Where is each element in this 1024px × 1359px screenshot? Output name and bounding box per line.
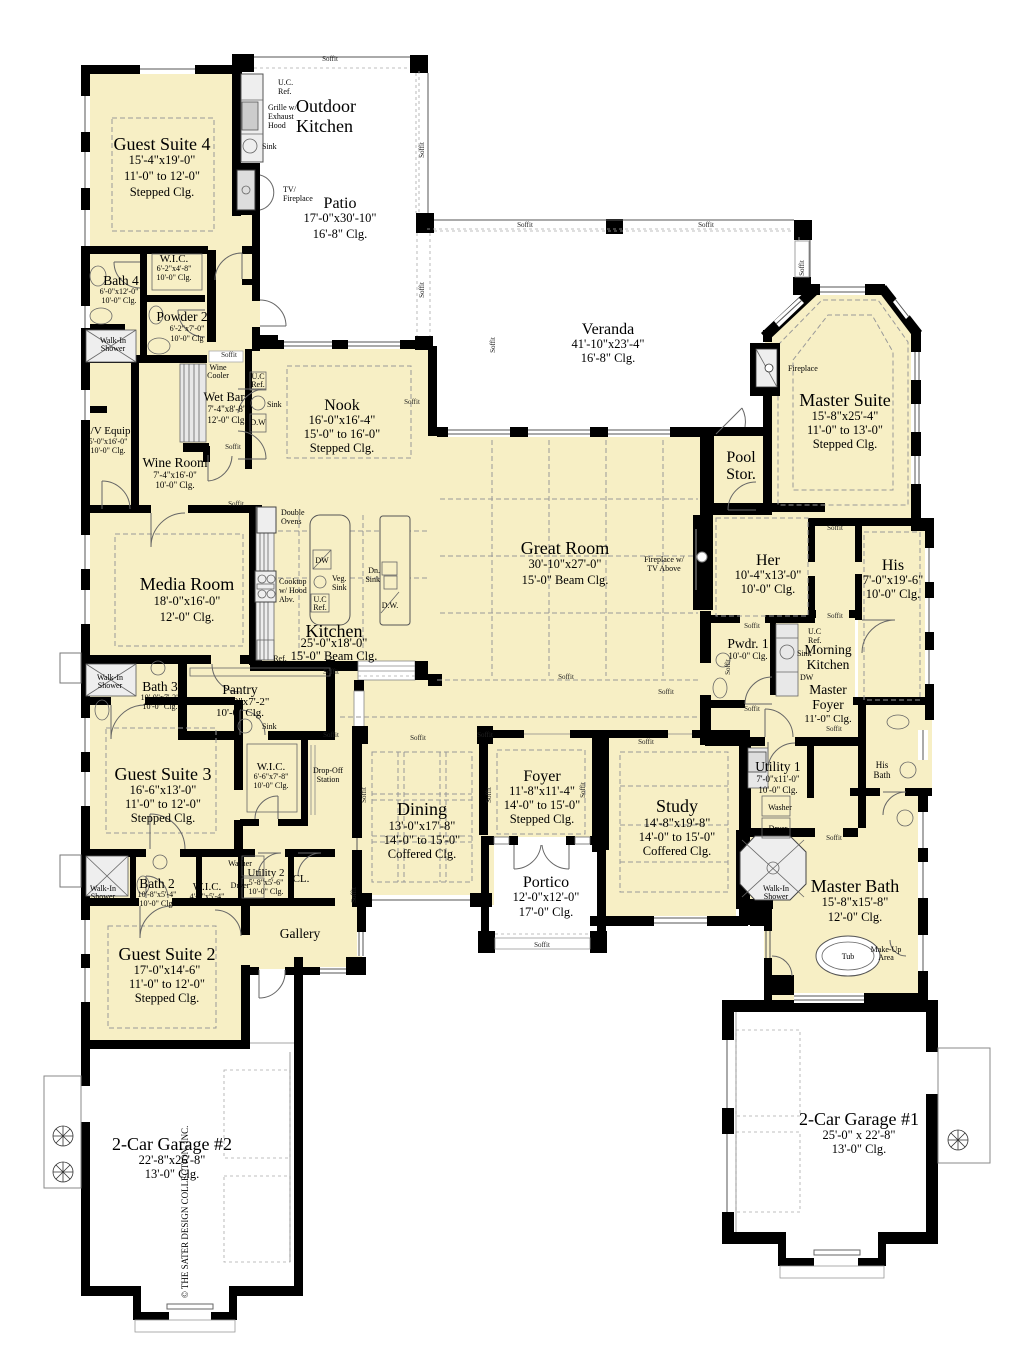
svg-text:16'-0"x16'-4": 16'-0"x16'-4" xyxy=(309,413,376,427)
svg-text:Coffered Clg.: Coffered Clg. xyxy=(388,847,457,861)
svg-text:DW: DW xyxy=(800,673,814,682)
svg-text:Guest Suite 3: Guest Suite 3 xyxy=(115,764,212,784)
svg-text:7'-4"x8'-8": 7'-4"x8'-8" xyxy=(207,404,246,414)
svg-text:15'-0" Beam Clg.: 15'-0" Beam Clg. xyxy=(522,573,609,587)
svg-text:13'-0"x17'-8": 13'-0"x17'-8" xyxy=(389,819,456,833)
svg-text:7'-0"x11'-0": 7'-0"x11'-0" xyxy=(756,774,800,784)
svg-text:2-Car Garage #2: 2-Car Garage #2 xyxy=(112,1134,232,1154)
svg-text:TV/: TV/ xyxy=(283,185,297,194)
svg-text:Soffit: Soffit xyxy=(658,688,674,696)
svg-text:U.C: U.C xyxy=(808,627,821,636)
svg-text:Soffit: Soffit xyxy=(418,142,426,158)
svg-text:Soffit: Soffit xyxy=(489,337,497,353)
svg-text:Stepped Clg.: Stepped Clg. xyxy=(130,185,195,199)
svg-text:10'-4"x13'-0": 10'-4"x13'-0" xyxy=(735,568,802,582)
svg-text:Ref.: Ref. xyxy=(278,87,292,96)
svg-text:Cooler: Cooler xyxy=(207,371,229,380)
svg-text:2-Car Garage #1: 2-Car Garage #1 xyxy=(799,1109,919,1129)
svg-text:15'-4"x19'-0": 15'-4"x19'-0" xyxy=(129,153,196,167)
svg-text:Stepped Clg.: Stepped Clg. xyxy=(510,812,575,826)
svg-text:10'-0" Clg: 10'-0" Clg xyxy=(171,334,204,343)
svg-text:7'-0"x19'-6": 7'-0"x19'-6" xyxy=(863,573,924,587)
svg-text:14'-0" to 15'-0": 14'-0" to 15'-0" xyxy=(504,798,581,812)
svg-text:Nook: Nook xyxy=(324,397,360,414)
svg-text:Ref.: Ref. xyxy=(273,654,287,663)
svg-text:Ref.: Ref. xyxy=(808,636,822,645)
svg-text:Soffit: Soffit xyxy=(477,731,493,739)
svg-text:Soffit: Soffit xyxy=(410,734,426,742)
svg-text:Soffit: Soffit xyxy=(350,887,358,903)
svg-text:Stepped Clg.: Stepped Clg. xyxy=(135,991,200,1005)
svg-text:Double: Double xyxy=(281,508,305,517)
svg-text:11'-0" to 12'-0": 11'-0" to 12'-0" xyxy=(129,977,205,991)
svg-text:Study: Study xyxy=(656,796,698,816)
svg-text:Bath 2: Bath 2 xyxy=(139,876,175,891)
svg-text:Abv.: Abv. xyxy=(279,595,294,604)
svg-text:Portico: Portico xyxy=(523,874,569,891)
svg-text:Shower: Shower xyxy=(764,892,789,901)
svg-text:7'-4"x16'-0": 7'-4"x16'-0" xyxy=(153,470,197,480)
svg-text:14'-0" to 15'-0": 14'-0" to 15'-0" xyxy=(639,830,716,844)
svg-text:Soffit: Soffit xyxy=(798,260,806,276)
svg-text:Media Room: Media Room xyxy=(140,574,235,594)
svg-text:CL.: CL. xyxy=(293,873,310,885)
svg-text:30'-10"x27'-0": 30'-10"x27'-0" xyxy=(528,557,601,571)
svg-text:Cooktop: Cooktop xyxy=(279,577,307,586)
svg-text:Sink: Sink xyxy=(797,649,812,658)
svg-text:Stepped Clg.: Stepped Clg. xyxy=(813,437,878,451)
svg-text:6'-2"x7'-0": 6'-2"x7'-0" xyxy=(170,324,205,333)
svg-text:Exhaust: Exhaust xyxy=(268,112,295,121)
svg-text:Gallery: Gallery xyxy=(280,926,321,941)
svg-text:6'-2"x4'-8": 6'-2"x4'-8" xyxy=(157,264,192,273)
svg-text:25'-0"x18'-0": 25'-0"x18'-0" xyxy=(301,636,368,650)
svg-text:Shower: Shower xyxy=(98,681,123,690)
svg-text:Soffit: Soffit xyxy=(323,731,339,739)
svg-text:10'-0" Clg.: 10'-0" Clg. xyxy=(728,651,767,661)
svg-text:Her: Her xyxy=(756,552,781,569)
svg-text:14'-8"x19'-8": 14'-8"x19'-8" xyxy=(644,816,711,830)
svg-text:Soffit: Soffit xyxy=(724,659,732,675)
svg-text:Soffit: Soffit xyxy=(322,55,338,63)
svg-text:Kitchen: Kitchen xyxy=(807,657,850,672)
svg-text:15'-0" Beam Clg.: 15'-0" Beam Clg. xyxy=(291,649,378,663)
svg-text:Soffit: Soffit xyxy=(558,673,574,681)
svg-text:5'-0"x16'-0": 5'-0"x16'-0" xyxy=(89,437,128,446)
svg-text:D.W: D.W xyxy=(250,418,266,427)
svg-text:Wet Bar: Wet Bar xyxy=(204,390,246,404)
svg-text:Soffit: Soffit xyxy=(418,282,426,298)
svg-text:His: His xyxy=(882,557,904,574)
svg-text:Soffit: Soffit xyxy=(579,782,587,798)
svg-text:10'-8"x5'-4": 10'-8"x5'-4" xyxy=(138,890,177,899)
svg-text:Soffit: Soffit xyxy=(826,834,842,842)
svg-text:6'-6"x7'-8": 6'-6"x7'-8" xyxy=(254,772,289,781)
svg-text:Pantry: Pantry xyxy=(222,682,257,697)
svg-text:Soffit: Soffit xyxy=(225,443,241,451)
svg-text:Fireplace: Fireplace xyxy=(283,194,313,203)
svg-text:Bath 4: Bath 4 xyxy=(103,273,139,288)
svg-text:Utility 1: Utility 1 xyxy=(755,759,800,774)
svg-text:Drop-Off: Drop-Off xyxy=(313,766,343,775)
svg-text:Bath: Bath xyxy=(874,770,891,780)
svg-text:Sink: Sink xyxy=(262,722,277,731)
svg-text:41'-10"x23'-4": 41'-10"x23'-4" xyxy=(571,337,644,351)
svg-text:Shower: Shower xyxy=(101,344,126,353)
svg-text:16'-6"x13'-0": 16'-6"x13'-0" xyxy=(130,783,197,797)
svg-text:Soffit: Soffit xyxy=(360,787,368,803)
svg-text:Dryer: Dryer xyxy=(769,824,788,833)
svg-text:© THE SATER DESIGN COLLECTION,: © THE SATER DESIGN COLLECTION, INC. xyxy=(180,1126,190,1298)
svg-text:Soffit: Soffit xyxy=(827,524,843,532)
svg-text:Foyer: Foyer xyxy=(812,697,844,712)
svg-text:Sink: Sink xyxy=(332,583,347,592)
svg-text:Soffit: Soffit xyxy=(744,622,760,630)
svg-text:10'-0" Clg.: 10'-0" Clg. xyxy=(741,582,796,596)
svg-text:10'-0" Clg.: 10'-0" Clg. xyxy=(866,587,921,601)
svg-text:22'-8"x26'-8": 22'-8"x26'-8" xyxy=(139,1153,206,1167)
svg-text:Ref.: Ref. xyxy=(313,603,327,612)
svg-text:11'-0" Clg.: 11'-0" Clg. xyxy=(804,713,852,725)
svg-text:17'-0"x30'-10": 17'-0"x30'-10" xyxy=(303,211,376,225)
svg-text:Stor.: Stor. xyxy=(726,466,756,483)
svg-text:Soffit: Soffit xyxy=(323,668,339,676)
svg-text:w/ Hood: w/ Hood xyxy=(279,586,307,595)
svg-text:Soffit: Soffit xyxy=(404,398,420,406)
svg-text:Tub: Tub xyxy=(842,952,855,961)
svg-text:Bath 3: Bath 3 xyxy=(142,679,178,694)
svg-text:Soffit: Soffit xyxy=(485,787,493,803)
svg-text:Hood: Hood xyxy=(268,121,286,130)
svg-text:Coffered Clg.: Coffered Clg. xyxy=(643,844,712,858)
svg-text:10'-0" Clg.: 10'-0" Clg. xyxy=(155,480,194,490)
svg-text:5'-8"x5'-6": 5'-8"x5'-6" xyxy=(249,878,284,887)
svg-text:15'-0" to 16'-0": 15'-0" to 16'-0" xyxy=(304,427,381,441)
svg-text:13'-0" Clg.: 13'-0" Clg. xyxy=(145,1167,200,1181)
svg-text:10'-0"x7'-2": 10'-0"x7'-2" xyxy=(141,693,180,702)
svg-text:Soffit: Soffit xyxy=(698,221,714,229)
svg-text:10'-0" Clg.: 10'-0" Clg. xyxy=(249,887,284,896)
svg-text:25'-0" x 22'-8": 25'-0" x 22'-8" xyxy=(822,1128,895,1142)
svg-text:Grille w/: Grille w/ xyxy=(268,103,297,112)
svg-text:TV Above: TV Above xyxy=(647,564,681,573)
svg-text:10'-0" Clg.: 10'-0" Clg. xyxy=(254,781,289,790)
svg-text:12'-0" Clg.: 12'-0" Clg. xyxy=(207,415,246,425)
svg-text:12'-0" Clg.: 12'-0" Clg. xyxy=(160,610,215,624)
svg-text:11'-8"x11'-4": 11'-8"x11'-4" xyxy=(509,784,575,798)
svg-text:Dryer: Dryer xyxy=(231,881,250,890)
svg-text:Outdoor: Outdoor xyxy=(296,96,356,116)
svg-text:15'-8"x15'-8": 15'-8"x15'-8" xyxy=(822,895,889,909)
svg-text:Shower: Shower xyxy=(91,892,116,901)
svg-text:Soffit: Soffit xyxy=(826,725,842,733)
svg-text:Guest Suite 2: Guest Suite 2 xyxy=(119,944,216,964)
svg-text:10'-0" Clg.: 10'-0" Clg. xyxy=(216,707,264,719)
svg-text:Great Room: Great Room xyxy=(521,538,609,558)
svg-text:10'-0" Clg.: 10'-0" Clg. xyxy=(102,296,137,305)
svg-text:Ovens: Ovens xyxy=(281,517,301,526)
svg-text:Veranda: Veranda xyxy=(582,321,634,338)
svg-text:Area: Area xyxy=(878,953,894,962)
svg-text:Master Suite: Master Suite xyxy=(799,390,891,410)
svg-text:D.W.: D.W. xyxy=(382,601,399,610)
svg-text:Kitchen: Kitchen xyxy=(296,116,353,136)
svg-text:11'-0" to 13'-0": 11'-0" to 13'-0" xyxy=(807,423,883,437)
svg-text:10'-0" Clg.: 10'-0" Clg. xyxy=(91,446,126,455)
svg-text:Sink: Sink xyxy=(267,400,282,409)
svg-text:11'-0" to 12'-0": 11'-0" to 12'-0" xyxy=(124,169,200,183)
svg-text:Soffit: Soffit xyxy=(517,221,533,229)
svg-text:DW: DW xyxy=(315,556,329,565)
svg-text:14'-0" to 15'-0": 14'-0" to 15'-0" xyxy=(384,833,461,847)
svg-text:Powder 2: Powder 2 xyxy=(156,309,207,324)
svg-text:16'-8" Clg.: 16'-8" Clg. xyxy=(581,351,636,365)
svg-text:4'-0"x5'-4": 4'-0"x5'-4" xyxy=(190,892,225,901)
svg-text:Washer: Washer xyxy=(228,859,252,868)
svg-text:Soffit: Soffit xyxy=(221,351,237,359)
svg-text:Pwdr. 1: Pwdr. 1 xyxy=(727,636,768,651)
svg-text:U.C.: U.C. xyxy=(278,78,293,87)
svg-text:Patio: Patio xyxy=(324,195,357,212)
svg-text:Soffit: Soffit xyxy=(827,612,843,620)
svg-text:18'-0"x16'-0": 18'-0"x16'-0" xyxy=(154,594,221,608)
svg-text:Master Bath: Master Bath xyxy=(811,876,899,896)
svg-text:12'-0" Clg.: 12'-0" Clg. xyxy=(828,910,883,924)
svg-text:10'-0" Clg.: 10'-0" Clg. xyxy=(143,702,178,711)
svg-text:Fireplace: Fireplace xyxy=(788,364,818,373)
svg-text:Soffit: Soffit xyxy=(228,500,244,508)
svg-text:Station: Station xyxy=(317,775,340,784)
svg-text:Ref.: Ref. xyxy=(251,380,265,389)
svg-text:Pool: Pool xyxy=(726,449,756,466)
svg-text:6'-0"x12'-0": 6'-0"x12'-0" xyxy=(100,287,139,296)
svg-text:Guest Suite 4: Guest Suite 4 xyxy=(114,134,211,154)
svg-text:Soffit: Soffit xyxy=(638,738,654,746)
svg-text:Dining: Dining xyxy=(397,799,447,819)
svg-text:A/V Equip.: A/V Equip. xyxy=(83,425,134,437)
svg-text:Dn.: Dn. xyxy=(368,566,380,575)
svg-text:17'-0" Clg.: 17'-0" Clg. xyxy=(519,905,574,919)
svg-text:His: His xyxy=(876,760,889,770)
svg-text:17'-0"x14'-6": 17'-0"x14'-6" xyxy=(134,963,201,977)
svg-text:Washer: Washer xyxy=(768,803,792,812)
svg-text:13'-0" Clg.: 13'-0" Clg. xyxy=(832,1142,887,1156)
svg-text:Stepped Clg.: Stepped Clg. xyxy=(310,441,375,455)
svg-text:Foyer: Foyer xyxy=(523,768,561,785)
svg-text:Soffit: Soffit xyxy=(534,941,550,949)
svg-text:Sink: Sink xyxy=(262,142,277,151)
svg-text:Master: Master xyxy=(809,682,847,697)
svg-text:10'-0" Clg.: 10'-0" Clg. xyxy=(157,273,192,282)
svg-text:16'-8" Clg.: 16'-8" Clg. xyxy=(313,227,368,241)
svg-text:Wine Room: Wine Room xyxy=(142,455,208,470)
svg-text:15'-8"x25'-4": 15'-8"x25'-4" xyxy=(812,409,879,423)
svg-text:12'-0"x12'-0": 12'-0"x12'-0" xyxy=(513,890,580,904)
svg-text:10'-0" Clg.: 10'-0" Clg. xyxy=(758,785,797,795)
svg-text:Sink: Sink xyxy=(365,575,380,584)
svg-text:Fireplace w/: Fireplace w/ xyxy=(644,555,685,564)
svg-text:10'-0" Clg.: 10'-0" Clg. xyxy=(140,899,175,908)
svg-text:Soffit: Soffit xyxy=(744,705,760,713)
svg-text:Stepped Clg.: Stepped Clg. xyxy=(131,811,196,825)
svg-text:11'-0" to 12'-0": 11'-0" to 12'-0" xyxy=(125,797,201,811)
svg-text:Veg.: Veg. xyxy=(332,574,346,583)
